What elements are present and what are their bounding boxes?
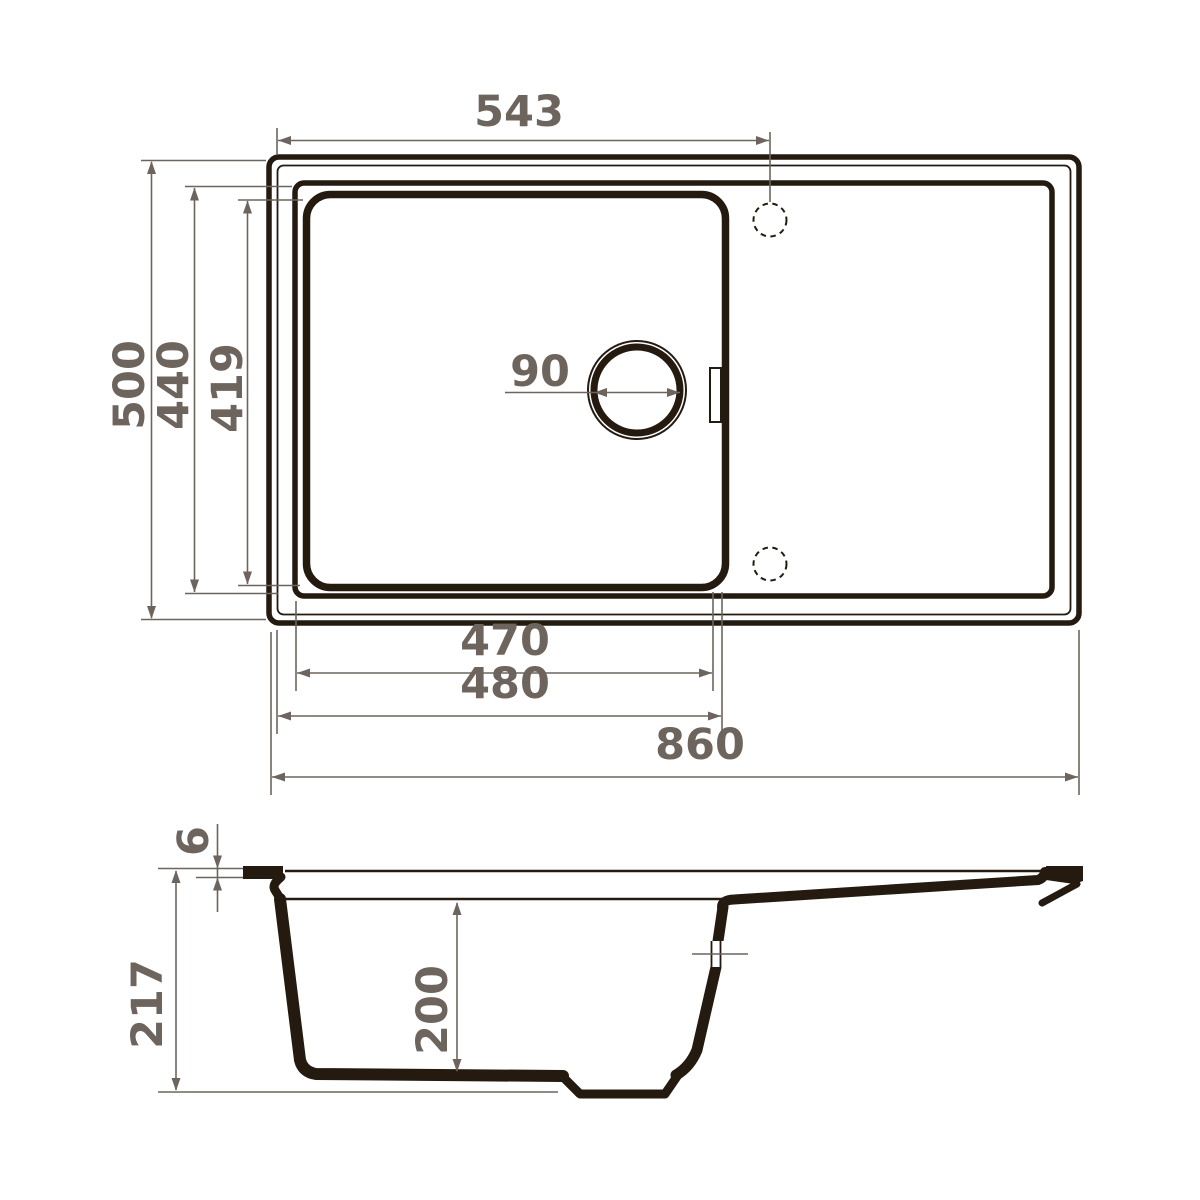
dim-label-480: 480 (460, 659, 550, 709)
dim-label-440: 440 (149, 340, 199, 430)
drainboard-surface (722, 872, 1045, 907)
dim-200-bowl-depth-section: 200 (408, 902, 462, 1072)
drain-well (561, 1075, 678, 1094)
dim-label-543: 543 (474, 87, 564, 137)
faucet-hole-bottom (754, 548, 787, 581)
overflow-tab (710, 368, 721, 422)
dim-label-200: 200 (408, 965, 458, 1055)
dim-label-217: 217 (123, 959, 173, 1049)
dim-label-500: 500 (105, 340, 155, 430)
sink-outer-edge (269, 157, 1079, 623)
faucet-hole-top (754, 204, 787, 237)
dim-label-90: 90 (510, 347, 570, 397)
dim-label-6: 6 (169, 826, 219, 856)
dim-label-419: 419 (203, 343, 253, 433)
dim-217-total-height: 217 (123, 869, 558, 1093)
top-view (269, 157, 1079, 623)
sink-technical-drawing: 543 500 440 419 90 470 480 (0, 0, 1200, 1200)
dim-419-bowl-depth-plan: 419 (203, 200, 303, 586)
bowl-right-wall-lower (676, 967, 716, 1075)
dim-860-overall-width: 860 (271, 630, 1079, 795)
dim-label-860: 860 (655, 720, 745, 770)
side-view (243, 866, 1083, 1094)
sink-outer-edge-inner-line (278, 166, 1071, 615)
right-lip-underside (1042, 884, 1077, 903)
rim-inner-edge (295, 183, 1052, 596)
drawing-canvas: 543 500 440 419 90 470 480 (0, 0, 1200, 1200)
dim-480-bowl-width-outer: 480 (277, 592, 722, 734)
bowl-right-wall-upper (718, 907, 723, 941)
